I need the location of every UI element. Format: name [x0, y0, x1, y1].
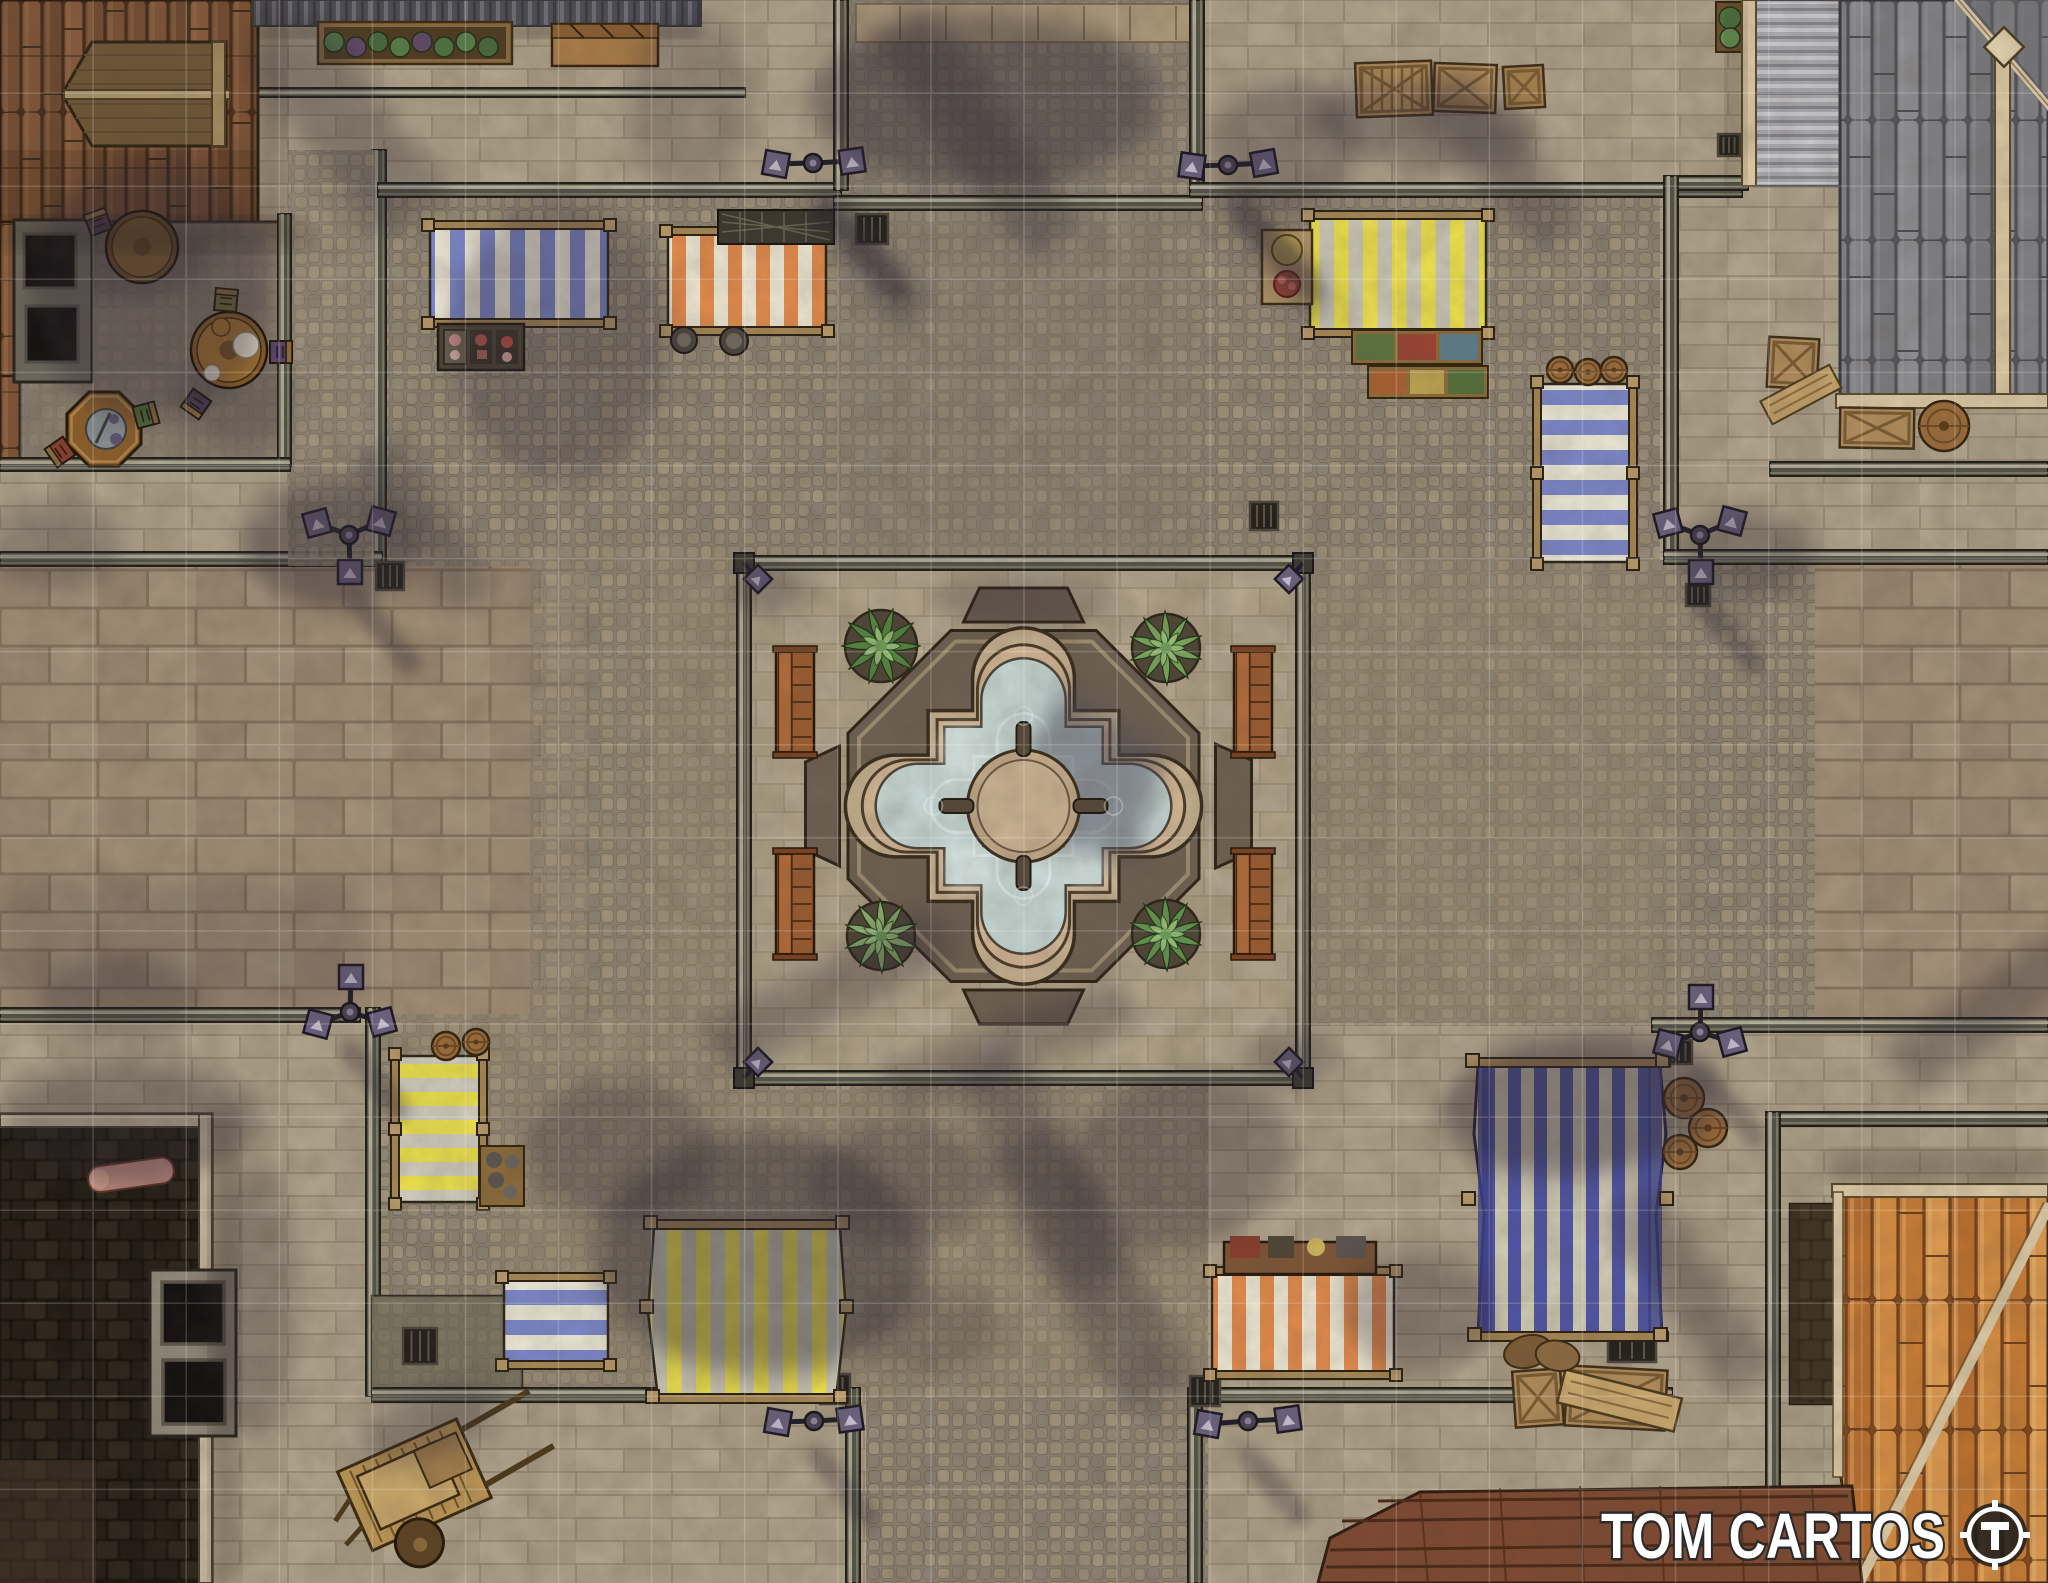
svg-text:TOM CARTOS: TOM CARTOS [1601, 1500, 1945, 1572]
